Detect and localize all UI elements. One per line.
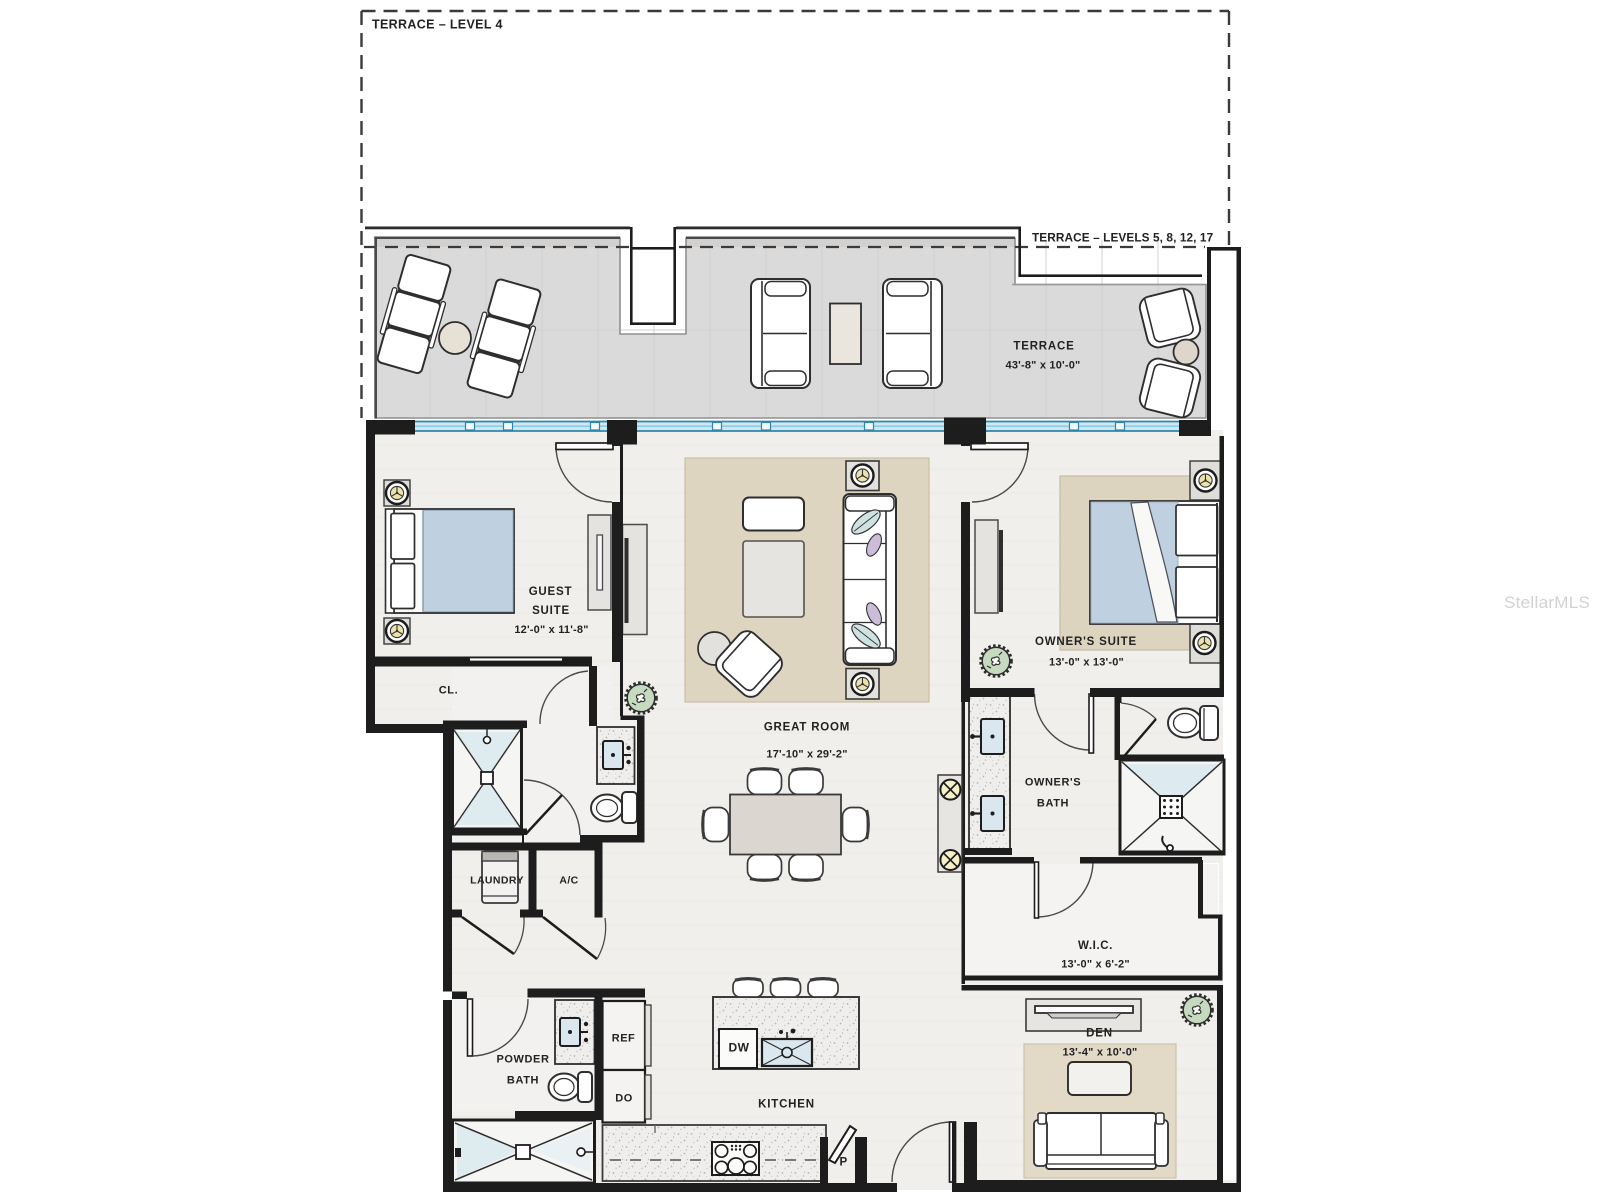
svg-text:REF: REF [612, 1033, 636, 1045]
svg-text:OWNER'S: OWNER'S [1025, 777, 1081, 789]
svg-text:TERRACE: TERRACE [1013, 341, 1074, 353]
svg-text:GUEST: GUEST [529, 586, 573, 598]
svg-text:P: P [840, 1157, 848, 1169]
svg-text:GREAT ROOM: GREAT ROOM [764, 722, 850, 734]
svg-text:DO: DO [615, 1093, 633, 1105]
svg-text:12'-0" x 11'-8": 12'-0" x 11'-8" [514, 624, 588, 636]
svg-text:POWDER: POWDER [496, 1054, 549, 1066]
svg-text:BATH: BATH [507, 1075, 539, 1087]
svg-text:43'-8" x 10'-0": 43'-8" x 10'-0" [1006, 360, 1081, 372]
svg-text:StellarMLS: StellarMLS [1504, 593, 1590, 612]
svg-text:CL.: CL. [439, 685, 459, 697]
svg-text:17'-10" x 29'-2": 17'-10" x 29'-2" [766, 749, 847, 761]
svg-text:SUITE: SUITE [532, 605, 570, 617]
svg-text:DW: DW [729, 1041, 750, 1055]
svg-text:13'-0" x 6'-2": 13'-0" x 6'-2" [1061, 959, 1130, 971]
svg-text:A/C: A/C [559, 875, 578, 887]
svg-text:BATH: BATH [1037, 798, 1069, 810]
svg-text:TERRACE – LEVELS 5, 8, 12, 17: TERRACE – LEVELS 5, 8, 12, 17 [1032, 231, 1214, 245]
svg-text:KITCHEN: KITCHEN [758, 1099, 815, 1111]
svg-text:DEN: DEN [1086, 1028, 1113, 1040]
svg-text:13'-0" x 13'-0": 13'-0" x 13'-0" [1049, 657, 1124, 669]
svg-text:W.I.C.: W.I.C. [1078, 940, 1113, 952]
svg-text:LAUNDRY: LAUNDRY [470, 875, 524, 887]
svg-text:OWNER'S SUITE: OWNER'S SUITE [1035, 636, 1137, 648]
svg-text:TERRACE – LEVEL 4: TERRACE – LEVEL 4 [372, 18, 503, 32]
svg-text:13'-4" x 10'-0": 13'-4" x 10'-0" [1063, 1047, 1138, 1059]
